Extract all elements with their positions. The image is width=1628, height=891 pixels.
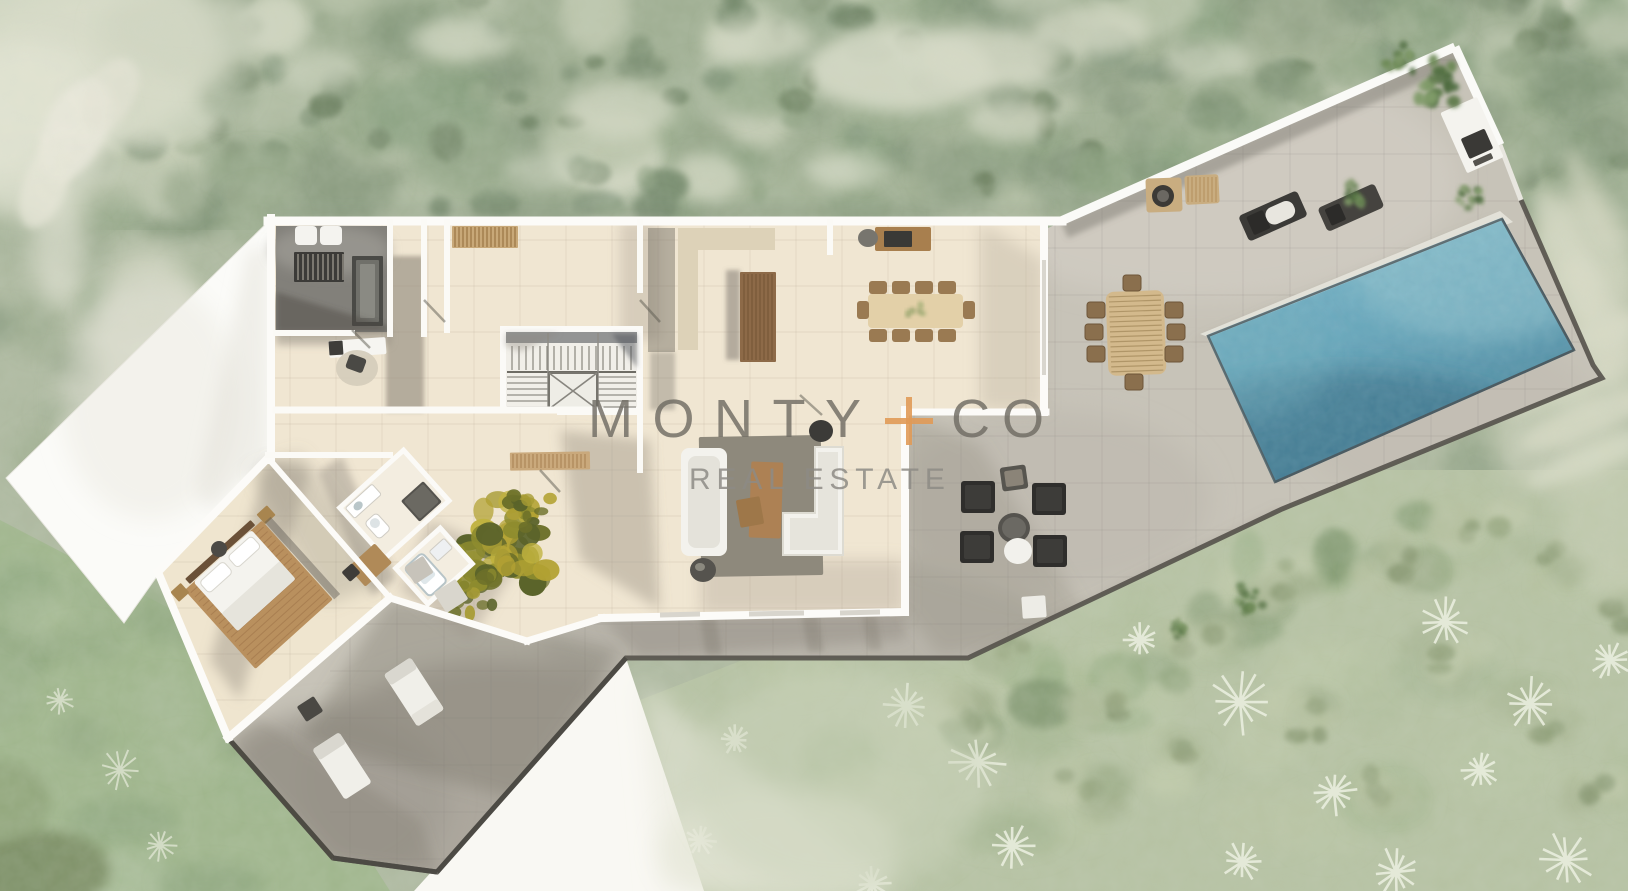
svg-text:REAL ESTATE: REAL ESTATE [689,463,951,496]
svg-text:MONTY: MONTY [588,389,881,449]
svg-text:CO: CO [951,389,1056,449]
